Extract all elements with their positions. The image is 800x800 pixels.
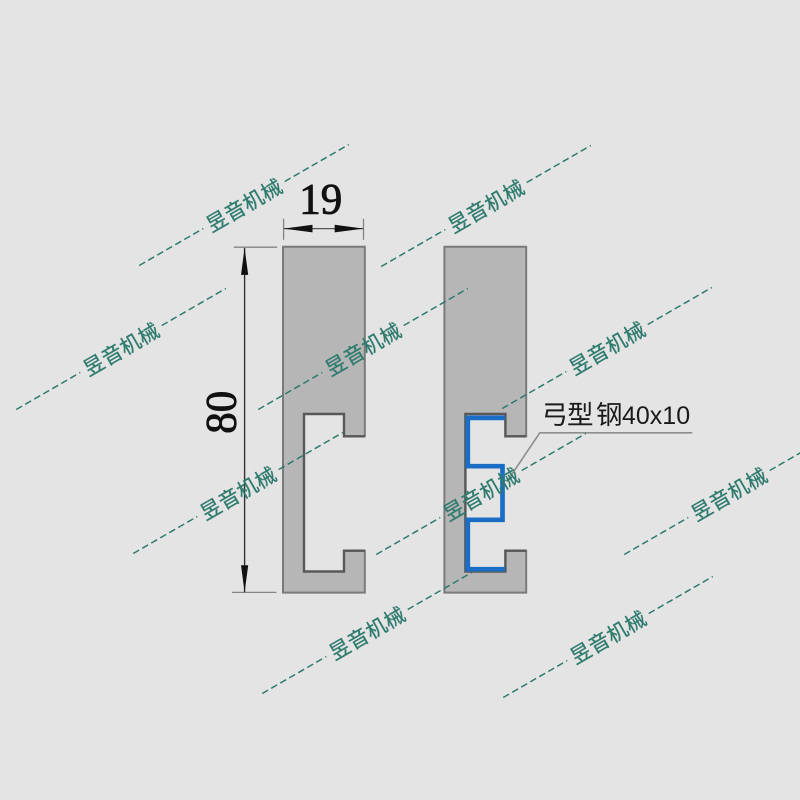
svg-text:80: 80: [199, 391, 246, 434]
svg-text:19: 19: [299, 177, 342, 224]
svg-text:40x10: 40x10: [622, 402, 690, 430]
